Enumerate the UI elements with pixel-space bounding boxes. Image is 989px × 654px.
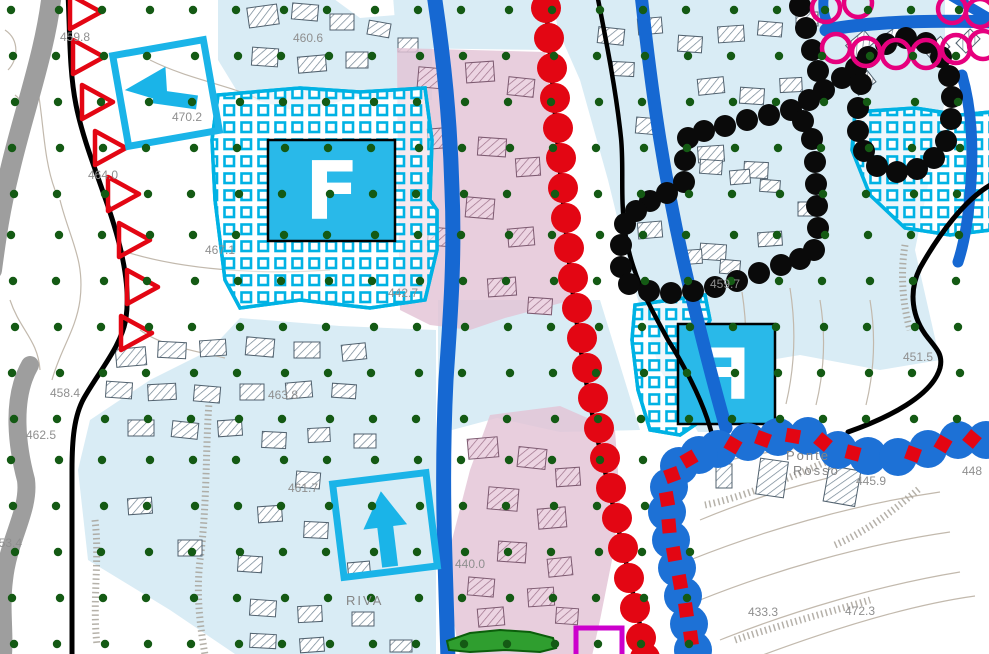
zoning-map: F F — [0, 0, 989, 654]
map-canvas[interactable]: F F — [0, 0, 989, 654]
